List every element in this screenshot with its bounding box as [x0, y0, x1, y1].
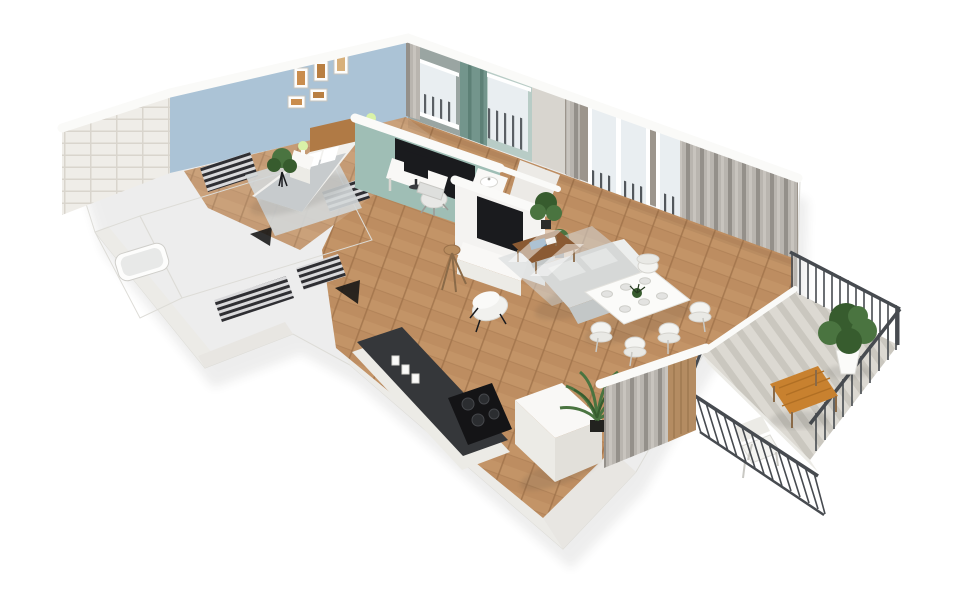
floorplan-svg: [0, 0, 960, 610]
living-curtain-left: [566, 95, 580, 180]
office-curtain: [406, 37, 420, 120]
floorplan-render: [0, 0, 960, 610]
